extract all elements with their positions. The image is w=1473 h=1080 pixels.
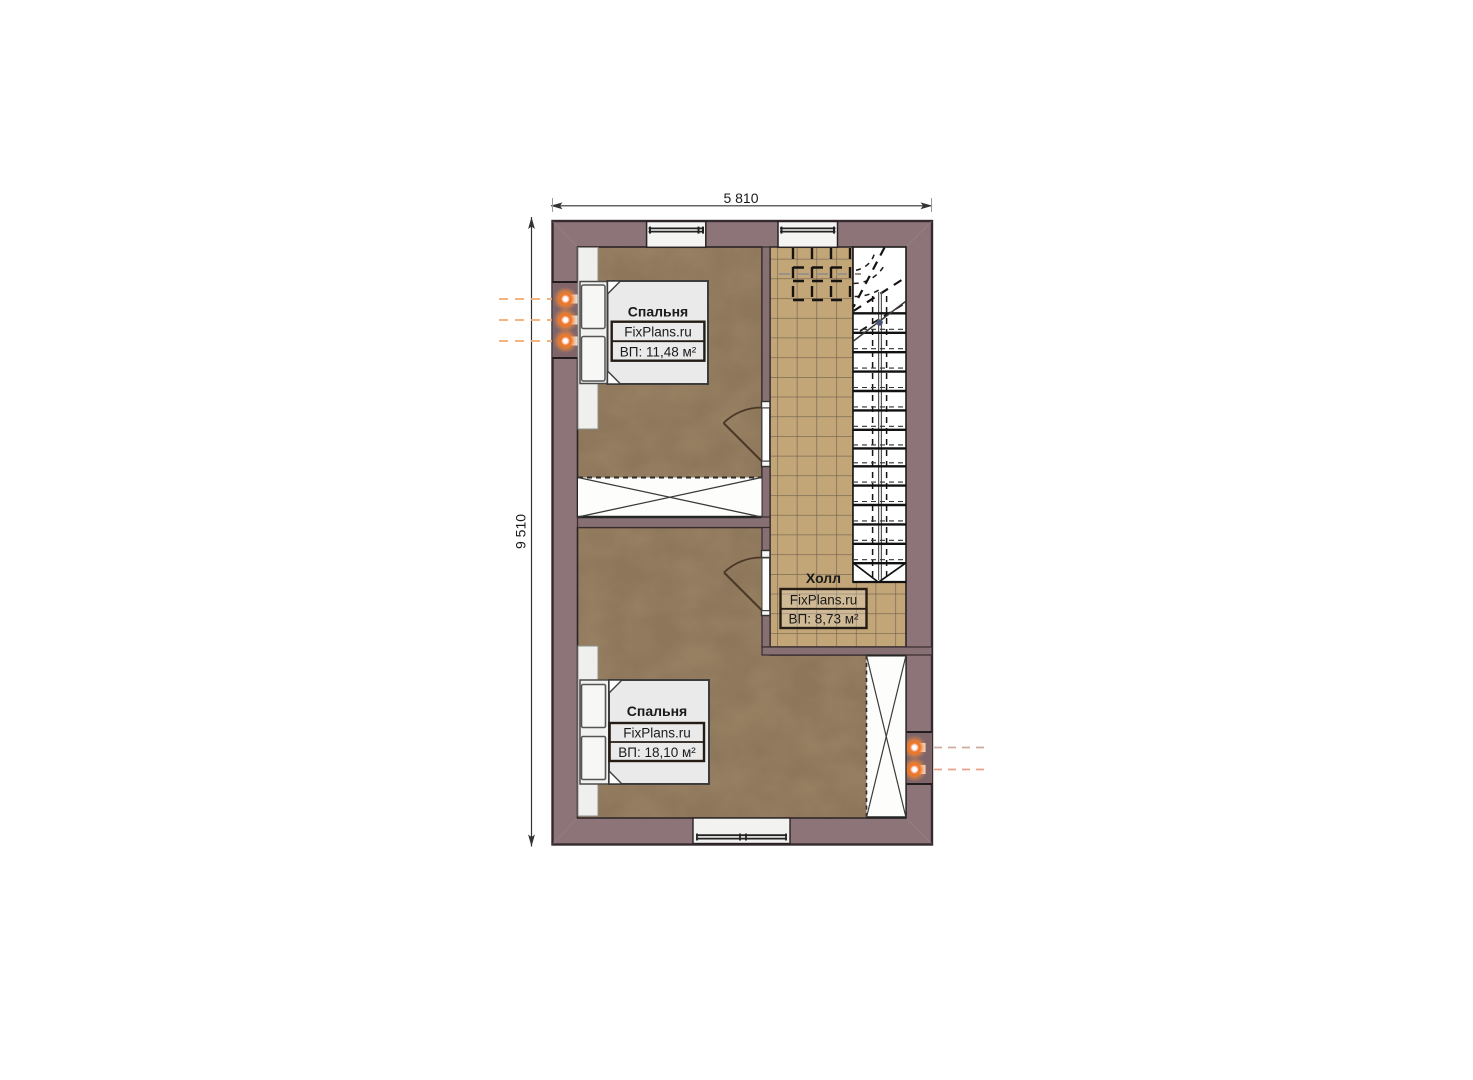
svg-text:FixPlans.ru: FixPlans.ru [624,325,692,340]
svg-text:5 810: 5 810 [723,190,758,206]
svg-text:Спальня: Спальня [628,304,688,320]
svg-text:ВП: 8,73 м²: ВП: 8,73 м² [788,612,859,627]
svg-text:9 510: 9 510 [513,514,529,549]
svg-text:FixPlans.ru: FixPlans.ru [623,726,691,741]
svg-text:ВП: 11,48 м²: ВП: 11,48 м² [620,345,697,360]
svg-text:FixPlans.ru: FixPlans.ru [790,593,858,608]
svg-text:ВП: 18,10 м²: ВП: 18,10 м² [618,745,696,760]
svg-text:Спальня: Спальня [627,703,687,719]
svg-text:Холл: Холл [806,570,841,586]
